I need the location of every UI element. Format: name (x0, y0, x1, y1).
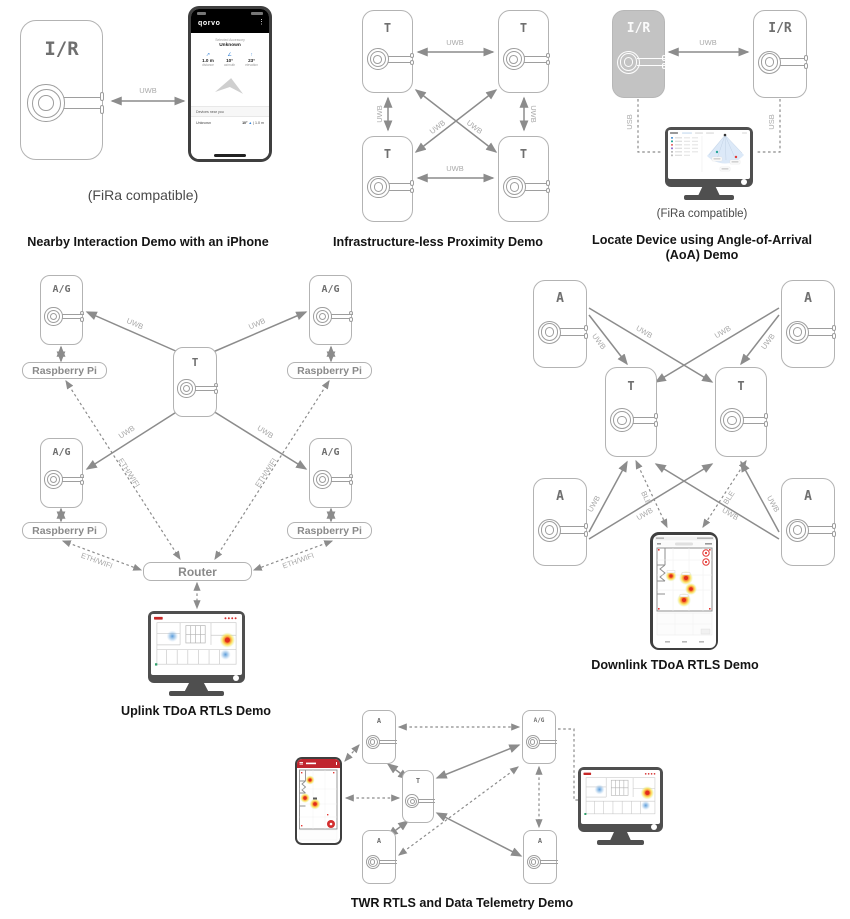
uwb-connector-icon (720, 408, 768, 432)
uwb-demo-diagram-sheet: UWB UWB UWB UWB UWB UWB UWB UWB USB USB … (0, 0, 850, 919)
phone-screen (297, 759, 340, 843)
monitor-base (684, 195, 733, 200)
caption-proximity: Infrastructure-less Proximity Demo (333, 235, 543, 249)
uwb-connector-icon (27, 84, 103, 121)
device-row-distance: 1.0 m (255, 121, 264, 125)
stat-label: distance (202, 63, 214, 67)
monitor-stand (610, 832, 630, 840)
eth-wifi-label: ETH/WIFI (116, 456, 141, 489)
uwb-label: UWB (586, 494, 602, 514)
qorvo-logo: qorvo (198, 20, 220, 27)
uwb-device-anchor: A (362, 710, 396, 764)
uwb-connector-icon (610, 408, 658, 432)
tag-blob-blue (220, 649, 231, 660)
uwb-device-anchor: A (781, 478, 835, 566)
device-label: A (363, 717, 395, 725)
device-label: T (499, 21, 548, 35)
android-phone-downlink (650, 532, 718, 650)
stats-row: ↗ 1.0 m distance ∠ 10° azimuth ↑ 23° ele… (191, 52, 269, 67)
aoa-fan-chart (707, 134, 744, 171)
uwb-device-tag: T (362, 10, 413, 93)
router-box: Router (143, 562, 252, 581)
caption-nearby: Nearby Interaction Demo with an iPhone (27, 235, 268, 249)
monitor-stand (698, 187, 719, 195)
device-label: A (782, 291, 834, 306)
device-row-angle: 10° (242, 121, 247, 125)
nearby-arrows: UWB (112, 86, 184, 101)
uwb-device-tag: T (173, 347, 217, 417)
uwb-connector-icon (367, 176, 414, 199)
device-label: A (363, 837, 395, 845)
uwb-connector-icon (617, 51, 666, 74)
uwb-label: UWB (759, 332, 777, 351)
device-row-values: 10° ▲ | 1.0 m (242, 121, 264, 125)
phone-screen (653, 535, 716, 648)
uwb-connector-icon (313, 307, 352, 325)
aoa-monitor (665, 127, 753, 200)
uwb-connector-icon (538, 519, 587, 542)
device-label: I/R (613, 21, 664, 36)
uwb-connector-icon (405, 794, 434, 808)
uwb-label: UWB (247, 316, 267, 331)
device-label: A (534, 489, 586, 504)
uwb-device-tag: T (498, 10, 549, 93)
anchor-badges (702, 549, 708, 564)
kebab-menu-icon: ⋮ (258, 19, 265, 26)
uplink-monitor (148, 611, 245, 696)
direction-pointer-icon (210, 75, 250, 97)
app-body: Selected Accessory Unknown ↗ 1.0 m dista… (191, 33, 269, 159)
ble-label: BLE (639, 490, 653, 507)
eth-wifi-label: ETH/WIFI (281, 551, 315, 571)
usb-label: USB (767, 114, 776, 129)
uwb-connector-icon (44, 307, 83, 325)
device-row-name: Unknown (196, 121, 211, 125)
uwb-device-anchor-gateway: A/G (309, 438, 352, 508)
fira-note-aoa: (FiRa compatible) (657, 208, 748, 220)
floorplan-core (186, 626, 205, 643)
rtls-floorplan-screen (151, 614, 242, 670)
uwb-connector-icon (526, 735, 557, 749)
caption-downlink: Downlink TDoA RTLS Demo (591, 658, 758, 672)
device-label: A (524, 837, 556, 845)
raspberry-pi-box: Raspberry Pi (22, 362, 107, 379)
raspberry-pi-box: Raspberry Pi (287, 362, 372, 379)
uwb-device-anchor: A (523, 830, 557, 884)
uwb-label: UWB (256, 423, 276, 440)
uwb-device-anchor-gateway: A/G (40, 275, 83, 345)
tag-heat-blobs (665, 570, 697, 607)
raspberry-pi-label: Raspberry Pi (32, 525, 97, 537)
uwb-label: UWB (125, 316, 145, 331)
raspberry-pi-label: Raspberry Pi (32, 365, 97, 377)
uwb-connector-icon (503, 176, 550, 199)
uwb-connector-icon (44, 470, 83, 488)
device-label: A/G (523, 717, 555, 724)
eth-wifi-label: ETH/WIFI (253, 456, 278, 489)
uwb-device-anchor-gateway: A/G (522, 710, 556, 764)
monitor-screen (668, 130, 750, 179)
uwb-device-tag: T (498, 136, 549, 222)
uwb-label: UWB (428, 118, 447, 136)
stat-elevation: ↑ 23° elevation (245, 52, 258, 67)
iphone: qorvo ⋮ Selected Accessory Unknown ↗ 1.0… (188, 6, 272, 162)
device-label: A (782, 489, 834, 504)
divider: | (253, 121, 254, 125)
device-label: A/G (310, 284, 351, 295)
rtls-floorplan-screen (581, 770, 660, 819)
stat-label: azimuth (224, 63, 235, 67)
rtls-phone-app (653, 535, 716, 648)
uwb-label: UWB (465, 118, 484, 136)
eth-wifi-label: ETH/WIFI (80, 551, 114, 571)
device-label: T (499, 147, 548, 161)
stat-label: elevation (245, 63, 258, 67)
device-label: T (174, 356, 216, 369)
uwb-connector-icon (786, 321, 835, 344)
uwb-label: UWB (699, 38, 717, 47)
status-time (197, 12, 206, 15)
caption-twr: TWR RTLS and Data Telemetry Demo (351, 896, 573, 910)
uwb-label: UWB (446, 38, 464, 47)
uwb-device-anchor-gateway: A/G (309, 275, 352, 345)
uwb-device-initiator-responder: I/R (753, 10, 807, 98)
uwb-label: UWB (720, 505, 740, 522)
monitor-base (169, 691, 223, 696)
uwb-label: UWB (139, 86, 157, 95)
uwb-label: UWB (446, 164, 464, 173)
uwb-device-initiator-responder-active: I/R (612, 10, 665, 98)
device-label: A/G (41, 447, 82, 458)
uwb-device-tag: T (715, 367, 767, 457)
device-label: T (363, 21, 412, 35)
router-label: Router (178, 565, 217, 579)
uwb-device-tag: T (605, 367, 657, 457)
caption-aoa-line1: Locate Device using Angle-of-Arrival (592, 233, 812, 247)
twr-phone-app (297, 759, 340, 843)
uwb-device-anchor: A (533, 478, 587, 566)
device-label: T (606, 379, 656, 393)
monitor-power-led (233, 675, 239, 681)
uwb-device-anchor: A (362, 830, 396, 884)
monitor-bezel (665, 127, 753, 187)
uwb-device-anchor-gateway: A/G (40, 438, 83, 508)
android-phone-twr (295, 757, 342, 845)
accessory-name: Unknown (191, 43, 269, 48)
uwb-connector-icon (366, 855, 397, 869)
caption-aoa-line2: (AoA) Demo (666, 248, 739, 262)
device-label: A/G (41, 284, 82, 295)
nav-bar-icons (665, 641, 704, 643)
monitor-power-led (741, 179, 747, 185)
uwb-connector-icon (313, 470, 352, 488)
status-icons (251, 12, 263, 15)
uwb-connector-icon (538, 321, 587, 344)
uwb-device-anchor: A (533, 280, 587, 368)
device-label: A (534, 291, 586, 306)
twr-monitor (578, 767, 663, 845)
raspberry-pi-box: Raspberry Pi (287, 522, 372, 539)
device-label: I/R (754, 21, 806, 36)
uwb-connector-icon (367, 48, 414, 70)
ble-label: BLE (721, 489, 736, 506)
monitor-screen (581, 770, 660, 824)
monitor-bezel (148, 611, 245, 683)
tag-blob-blue (167, 630, 179, 642)
uwb-label: UWB (635, 505, 655, 522)
uwb-connector-icon (527, 855, 558, 869)
caption-uplink: Uplink TDoA RTLS Demo (121, 704, 271, 718)
up-arrow-icon: ▲ (249, 121, 253, 125)
usb-label: USB (625, 114, 634, 129)
device-label: T (403, 777, 433, 785)
uwb-device-tag: T (402, 770, 434, 823)
stat-azimuth: ∠ 10° azimuth (224, 52, 235, 67)
raspberry-pi-label: Raspberry Pi (297, 525, 362, 537)
uwb-connector-icon (758, 51, 807, 74)
raspberry-pi-box: Raspberry Pi (22, 522, 107, 539)
aoa-app-screen (668, 130, 750, 174)
selected-accessory-label: Selected Accessory (191, 38, 269, 42)
devices-near-you-header: Devices near you (191, 106, 269, 117)
uwb-label: UWB (375, 105, 384, 123)
monitor-bezel (578, 767, 663, 832)
monitor-stand (185, 683, 208, 691)
uwb-label: UWB (117, 423, 137, 440)
raspberry-pi-label: Raspberry Pi (297, 365, 362, 377)
device-label: T (716, 379, 766, 393)
uwb-connector-icon (366, 735, 397, 749)
home-indicator (214, 154, 245, 156)
aoa-table (671, 137, 698, 156)
device-label: A/G (310, 447, 351, 458)
uwb-connector-icon (786, 519, 835, 542)
stat-distance: ↗ 1.0 m distance (202, 52, 214, 67)
iphone-screen: qorvo ⋮ Selected Accessory Unknown ↗ 1.0… (191, 9, 269, 159)
uwb-connector-icon (503, 48, 550, 70)
device-label: T (363, 147, 412, 161)
device-row: Unknown 10° ▲ | 1.0 m (191, 117, 269, 129)
tag-heat-blobs (300, 775, 321, 809)
monitor-power-led (651, 824, 657, 830)
app-header: qorvo ⋮ (191, 9, 269, 33)
uwb-label: UWB (529, 105, 538, 123)
fira-note-nearby: (FiRa compatible) (88, 187, 198, 203)
device-label: I/R (21, 38, 102, 60)
monitor-screen (151, 614, 242, 675)
monitor-base (597, 840, 645, 845)
uwb-device-anchor: A (781, 280, 835, 368)
uwb-device-initiator-responder: I/R (20, 20, 103, 160)
uwb-connector-icon (177, 379, 217, 397)
uwb-device-tag: T (362, 136, 413, 222)
